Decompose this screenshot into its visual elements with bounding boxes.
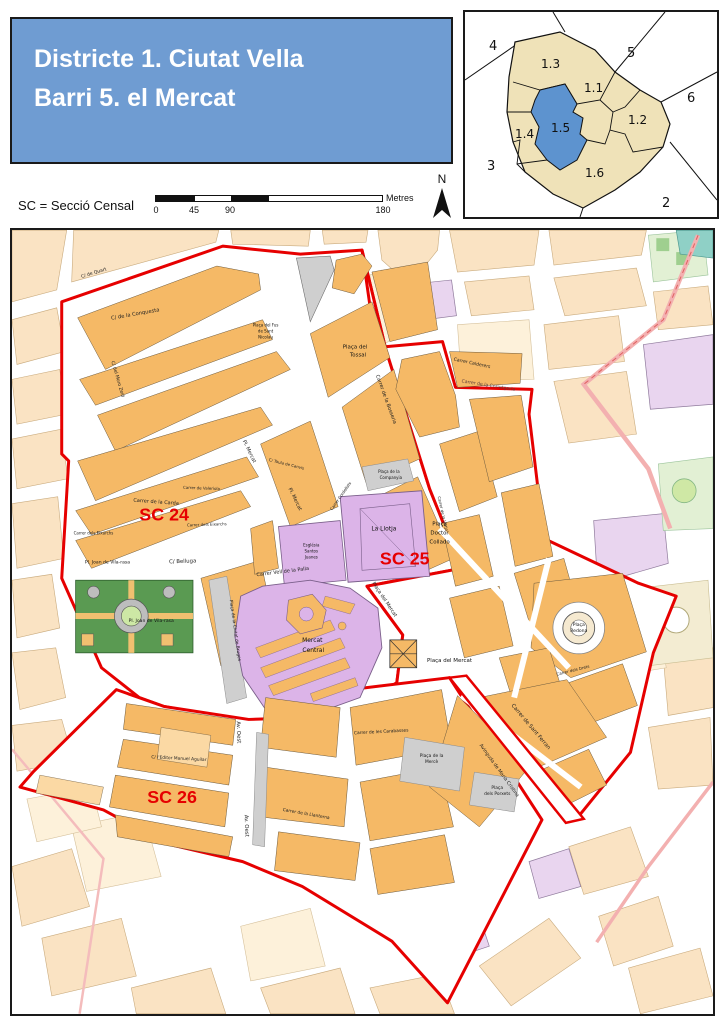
place-merce-2: Mercè	[425, 758, 439, 765]
place-porxets-2: dels Porxets	[484, 791, 511, 797]
scale-seg-3	[231, 196, 269, 201]
main-map[interactable]: SC 24 SC 25 SC 26 C/ de Quart C/ de la C…	[10, 228, 715, 1016]
map-sheet: { "header": { "line1": "Districte 1. Ciu…	[0, 0, 724, 1024]
place-esglesia-2: Santos	[305, 548, 319, 553]
north-label: N	[425, 172, 459, 186]
label-sc26: SC 26	[147, 787, 197, 807]
scale-unit: Metres	[386, 193, 414, 203]
inset-label-s11: 1.1	[584, 81, 603, 95]
place-placa-mercat: Plaça del Mercat	[427, 658, 472, 664]
place-companyia-1: Plaça de la	[378, 469, 400, 474]
place-sant-nicolau-3: Nicolau	[258, 335, 273, 340]
place-redona-2: Redona	[570, 628, 587, 634]
inset-locator-map: 4 5 6 3 2 1.3 1.1 1.2 1.4 1.5 1.6	[463, 10, 719, 219]
scale-seg-1	[156, 196, 195, 201]
place-redona-1: Plaça	[573, 622, 585, 628]
inset-label-s16: 1.6	[585, 166, 604, 180]
street-av-oest: Av. Oest	[235, 721, 242, 743]
place-mercat-central-2: Central	[302, 647, 324, 654]
inset-label-s13: 1.3	[541, 57, 560, 71]
scale-bar: 0 45 90 180 Metres	[155, 193, 405, 215]
inset-svg: 4 5 6 3 2 1.3 1.1 1.2 1.4 1.5 1.6	[465, 12, 717, 217]
inset-label-s14: 1.4	[515, 127, 534, 141]
street-belluga: C/ Belluga	[169, 558, 196, 565]
scale-tick-180: 180	[375, 205, 390, 215]
place-porxets-1: Plaça	[491, 785, 503, 791]
scale-seg-2	[195, 196, 231, 201]
north-arrow-glyph	[425, 186, 459, 220]
scale-tick-45: 45	[189, 205, 199, 215]
main-map-svg: SC 24 SC 25 SC 26 C/ de Quart C/ de la C…	[12, 230, 713, 1014]
street-eixarchs: Carrer dels Eixarchs	[74, 530, 114, 535]
inset-label-d3: 3	[487, 159, 495, 174]
north-arrow: N	[425, 172, 459, 218]
scale-tick-0: 0	[153, 205, 158, 215]
church-icon	[390, 640, 417, 668]
scale-bar-track	[155, 195, 383, 202]
place-vilarasa-2: Pl. Joan de Vila-rasa	[129, 618, 174, 624]
street-av-oest-2: Av. Oest	[243, 815, 250, 837]
place-sant-nicolau-2: de Sant	[258, 329, 274, 334]
place-collado-2: Doctor	[430, 530, 449, 536]
place-esglesia-1: Església	[303, 542, 320, 547]
label-sc24: SC 24	[139, 505, 189, 525]
place-tossal-2: Tossal	[349, 353, 366, 359]
inset-label-d2: 2	[662, 196, 670, 211]
sc-legend-note: SC = Secció Censal	[18, 198, 134, 213]
barri-title: Barri 5. el Mercat	[34, 86, 451, 111]
place-sant-nicolau-1: Plaça del Fus	[253, 323, 279, 328]
place-merce-1: Plaça de la	[420, 753, 444, 759]
district-title: Districte 1. Ciutat Vella	[34, 47, 451, 72]
inset-label-d5: 5	[627, 46, 635, 61]
place-collado-3: Collado	[429, 539, 450, 545]
label-sc25: SC 25	[380, 548, 430, 568]
place-esglesia-3: Juanes	[304, 554, 318, 559]
inset-label-s12: 1.2	[628, 113, 647, 127]
place-la-llotja: La Llotja	[371, 526, 396, 533]
la-llotja-building	[340, 491, 429, 582]
inset-label-s15: 1.5	[551, 121, 570, 135]
place-tossal-1: Plaça del	[343, 345, 368, 351]
place-companyia-2: Companyia	[380, 475, 403, 480]
place-mercat-central-1: Mercat	[302, 637, 323, 644]
scale-seg-4	[269, 196, 382, 201]
vilarasa-park	[76, 580, 193, 653]
title-box: Districte 1. Ciutat Vella Barri 5. el Me…	[10, 17, 453, 164]
inset-label-d4: 4	[489, 39, 497, 54]
place-collado-1: Plaça	[432, 522, 447, 528]
place-vilarasa: Pl. Joan de Vila-rasa	[85, 559, 130, 565]
inset-label-d6: 6	[687, 91, 695, 106]
scale-tick-90: 90	[225, 205, 235, 215]
